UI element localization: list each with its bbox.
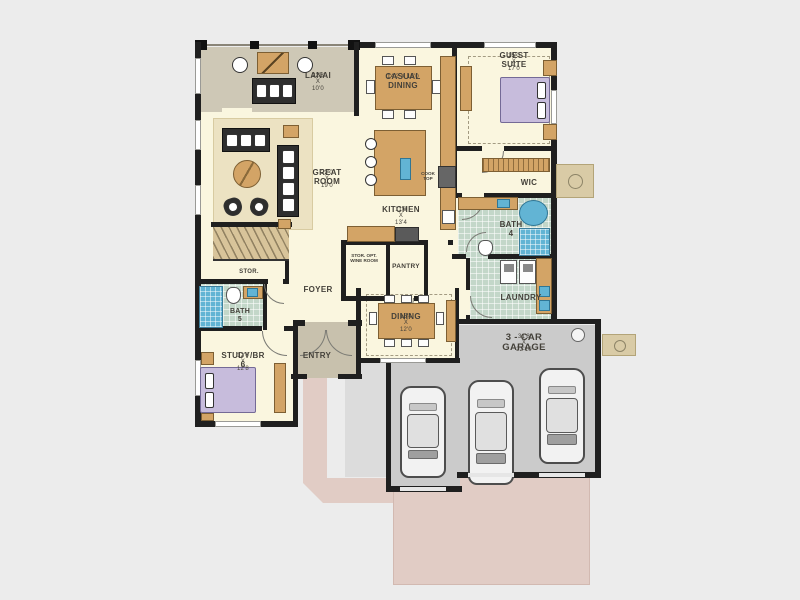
- window: [551, 90, 557, 124]
- wall: [195, 279, 268, 284]
- dryer: [519, 260, 536, 284]
- kitchen-stool: [365, 174, 377, 186]
- wall: [354, 42, 359, 116]
- great-room-sofa: [222, 128, 270, 152]
- window: [195, 120, 201, 150]
- lanai-post: [250, 41, 259, 49]
- window: [195, 58, 201, 94]
- ac-pad: [556, 164, 594, 198]
- chair: [404, 110, 416, 119]
- water-heater: [571, 328, 585, 342]
- chair: [366, 80, 375, 94]
- lanai-opening: [222, 108, 252, 112]
- window: [375, 42, 431, 48]
- chair: [418, 339, 429, 347]
- chair: [384, 295, 395, 303]
- wall: [466, 258, 470, 290]
- wall: [466, 315, 470, 322]
- lanai-screen: [197, 44, 357, 46]
- wall: [448, 240, 453, 245]
- kitchen-counter-south: [347, 226, 395, 242]
- side-porch: [345, 362, 392, 477]
- lanai-sofa: [252, 78, 296, 104]
- lanai-chair: [232, 57, 248, 73]
- car: [468, 380, 514, 485]
- great-room-console: [283, 125, 299, 138]
- guest-dresser: [460, 66, 472, 111]
- kitchen-stool: [365, 156, 377, 168]
- guest-bed: [500, 77, 550, 123]
- chair: [382, 56, 394, 65]
- chair: [401, 295, 412, 303]
- stairs: [213, 227, 289, 261]
- lanai-post: [308, 41, 317, 49]
- nightstand: [201, 352, 214, 365]
- chair: [436, 312, 444, 325]
- nightstand: [543, 124, 557, 140]
- window: [195, 185, 201, 215]
- garage-door-opening: [400, 487, 446, 491]
- bath5-shower: [199, 286, 223, 328]
- dining-buffet: [446, 300, 456, 342]
- bath5-toilet: [226, 287, 241, 304]
- cooktop: [438, 166, 456, 188]
- wall: [504, 146, 556, 151]
- wall: [341, 240, 346, 300]
- wall: [356, 288, 361, 378]
- chair: [401, 339, 412, 347]
- lanai-table: [257, 52, 289, 74]
- great-room-sectional: [277, 145, 299, 217]
- closet-rod: [482, 158, 550, 172]
- window: [380, 358, 426, 363]
- wall: [453, 319, 601, 324]
- wall: [424, 244, 428, 300]
- kitchen-stool: [365, 138, 377, 150]
- study-dresser: [274, 363, 286, 413]
- nightstand: [543, 60, 557, 76]
- bath4-sink: [497, 199, 510, 208]
- wall: [386, 244, 390, 300]
- kitchen-counter-right: [440, 56, 456, 230]
- car: [539, 368, 585, 464]
- chair: [382, 110, 394, 119]
- wall: [595, 322, 601, 478]
- floor-plan: LANAI 22'8 X 10'0 GREAT ROOM 22'0 X 19'0…: [0, 0, 800, 600]
- wall: [452, 254, 466, 259]
- bath5-sink: [247, 288, 258, 297]
- window: [484, 42, 536, 48]
- bath4-toilet: [478, 240, 493, 256]
- bath4-tub: [519, 200, 548, 226]
- ac-pad: [602, 334, 636, 356]
- chair: [369, 312, 377, 325]
- great-room-side-table: [278, 219, 291, 229]
- great-room-round-table: [233, 160, 261, 188]
- chair: [418, 295, 429, 303]
- chair: [404, 56, 416, 65]
- washer: [500, 260, 517, 284]
- wall: [291, 374, 307, 379]
- bath4-shower: [519, 228, 550, 256]
- wall-oven: [442, 210, 455, 224]
- garage-door-opening: [539, 473, 585, 477]
- study-bed: [200, 367, 256, 413]
- kitchen-sink: [400, 158, 411, 180]
- garage-door-opening: [468, 473, 514, 477]
- nightstand: [201, 413, 214, 421]
- window: [215, 421, 261, 427]
- chair: [384, 339, 395, 347]
- refrigerator: [395, 227, 419, 242]
- wall: [386, 360, 391, 490]
- car: [400, 386, 446, 478]
